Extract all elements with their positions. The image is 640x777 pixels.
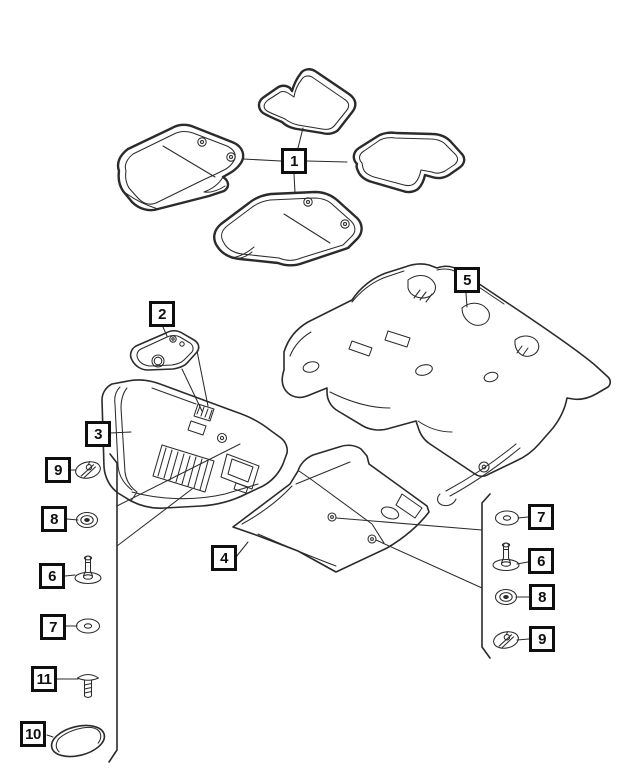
left-fastener-column	[48, 460, 107, 762]
console-bracket	[221, 454, 259, 489]
callout-tick	[518, 517, 528, 518]
mat-heel-tongue	[204, 177, 225, 192]
tunnel-hump	[515, 336, 539, 356]
carpet3-to-bracket-line	[117, 489, 192, 546]
callout-left-6[interactable]: 6	[39, 563, 65, 589]
carpet4-fastener-hole	[368, 535, 376, 543]
callout-1[interactable]: 1	[281, 148, 307, 174]
carpet4-oval-hole	[380, 505, 401, 521]
pad-mount-line	[182, 369, 202, 411]
pad-outline	[131, 331, 199, 370]
quarter-turn-retainer-icon	[74, 460, 102, 481]
callout-5[interactable]: 5	[454, 267, 480, 293]
carpet5-tab	[385, 331, 410, 347]
center-floor-carpet	[233, 445, 429, 572]
mat-outline	[214, 192, 361, 265]
shoulder-screw-icon	[78, 675, 99, 698]
mid-seam	[330, 392, 390, 408]
pad-mount-anchor	[194, 404, 214, 421]
callout-right-6[interactable]: 6	[528, 548, 554, 574]
front-floor-carpet	[102, 380, 287, 508]
rail-end-cap	[438, 494, 456, 506]
parts-diagram-page: 1 2 3 4 5 9 8 6 7 11 10 7 6 8 9	[0, 0, 640, 777]
carpet4-tab	[396, 494, 422, 518]
mat-heel-tongue	[231, 247, 254, 259]
flat-washer-icon	[496, 511, 519, 525]
carpet4-outline	[233, 445, 429, 572]
oval-cover-pad-icon	[48, 720, 107, 761]
callout3-leader	[110, 432, 131, 433]
right-fastener-column	[492, 511, 520, 650]
callout-right-9[interactable]: 9	[529, 626, 555, 652]
callout1-leader-top	[298, 128, 303, 148]
floor-mat-front-right	[214, 192, 361, 265]
callout1-leader-bottom	[294, 174, 295, 193]
callout4-leader	[236, 542, 248, 557]
mid-seam	[418, 421, 452, 432]
callout-4[interactable]: 4	[211, 545, 237, 571]
callout-tick	[65, 575, 75, 576]
mat-grommet	[227, 153, 235, 161]
mat-crease-line	[163, 146, 215, 177]
carpet5-tab	[349, 341, 372, 356]
callout-right-7[interactable]: 7	[528, 504, 554, 530]
mat-grommet	[341, 220, 349, 228]
right-fastener-bracket	[482, 494, 490, 658]
callout1-leader-left	[243, 159, 281, 161]
side-rail	[446, 444, 516, 491]
pad-snap	[180, 342, 184, 346]
callout-left-10[interactable]: 10	[20, 721, 46, 747]
carpet4-to-bracket-line	[376, 540, 482, 588]
left-fastener-bracket	[109, 454, 117, 762]
sill-flap-edge	[121, 388, 137, 501]
callout-tick	[47, 735, 53, 737]
callout-right-8[interactable]: 8	[529, 584, 555, 610]
callout-left-8[interactable]: 8	[41, 506, 67, 532]
carpet4-fastener-hole	[328, 513, 336, 521]
carpet5-oval-hole	[483, 371, 499, 383]
mat-grommet	[198, 138, 206, 146]
floor-mat-rear-left	[259, 69, 355, 134]
callout-3[interactable]: 3	[85, 421, 111, 447]
callout-2[interactable]: 2	[149, 301, 175, 327]
mat-outline	[354, 133, 464, 192]
tunnel-hump	[462, 303, 489, 325]
top-edge-accent	[152, 388, 196, 404]
grommet-nut-icon	[496, 590, 517, 605]
push-pin-fastener-icon	[493, 543, 519, 571]
parts-diagram-canvas	[0, 0, 640, 777]
flat-washer-icon	[77, 619, 100, 633]
mat-grommet	[304, 198, 312, 206]
floor-mat-rear-right	[354, 133, 464, 192]
callout-left-11[interactable]: 11	[31, 666, 57, 692]
callout1-leader-right	[307, 161, 347, 162]
carpet3-grommet-hole	[218, 434, 227, 443]
push-pin-fastener-icon	[75, 556, 101, 584]
pad-snap	[170, 336, 176, 342]
carpet4-seam	[299, 471, 384, 543]
carpet3-slot	[188, 421, 206, 435]
footrest-pad	[131, 331, 199, 370]
callout-left-7[interactable]: 7	[40, 614, 66, 640]
mat-crease-line	[284, 214, 330, 243]
leader-lines	[47, 128, 529, 762]
callout-left-9[interactable]: 9	[45, 457, 71, 483]
pad-inner-line	[137, 336, 193, 367]
grommet-nut-icon	[77, 513, 98, 528]
quarter-turn-retainer-icon	[492, 630, 520, 651]
rib-hatching	[158, 448, 208, 490]
rib-panel-outline	[153, 445, 214, 492]
mat-outline	[259, 69, 355, 134]
floor-mat-front-left	[118, 125, 243, 210]
hump-hatching	[517, 346, 528, 355]
carpet5-outline	[282, 264, 610, 476]
carpet4-to-bracket-line	[336, 518, 482, 530]
carpet5-oval-hole	[414, 363, 433, 377]
carpet5-oval-hole	[302, 360, 320, 374]
carpet4-top-inner	[296, 462, 350, 484]
